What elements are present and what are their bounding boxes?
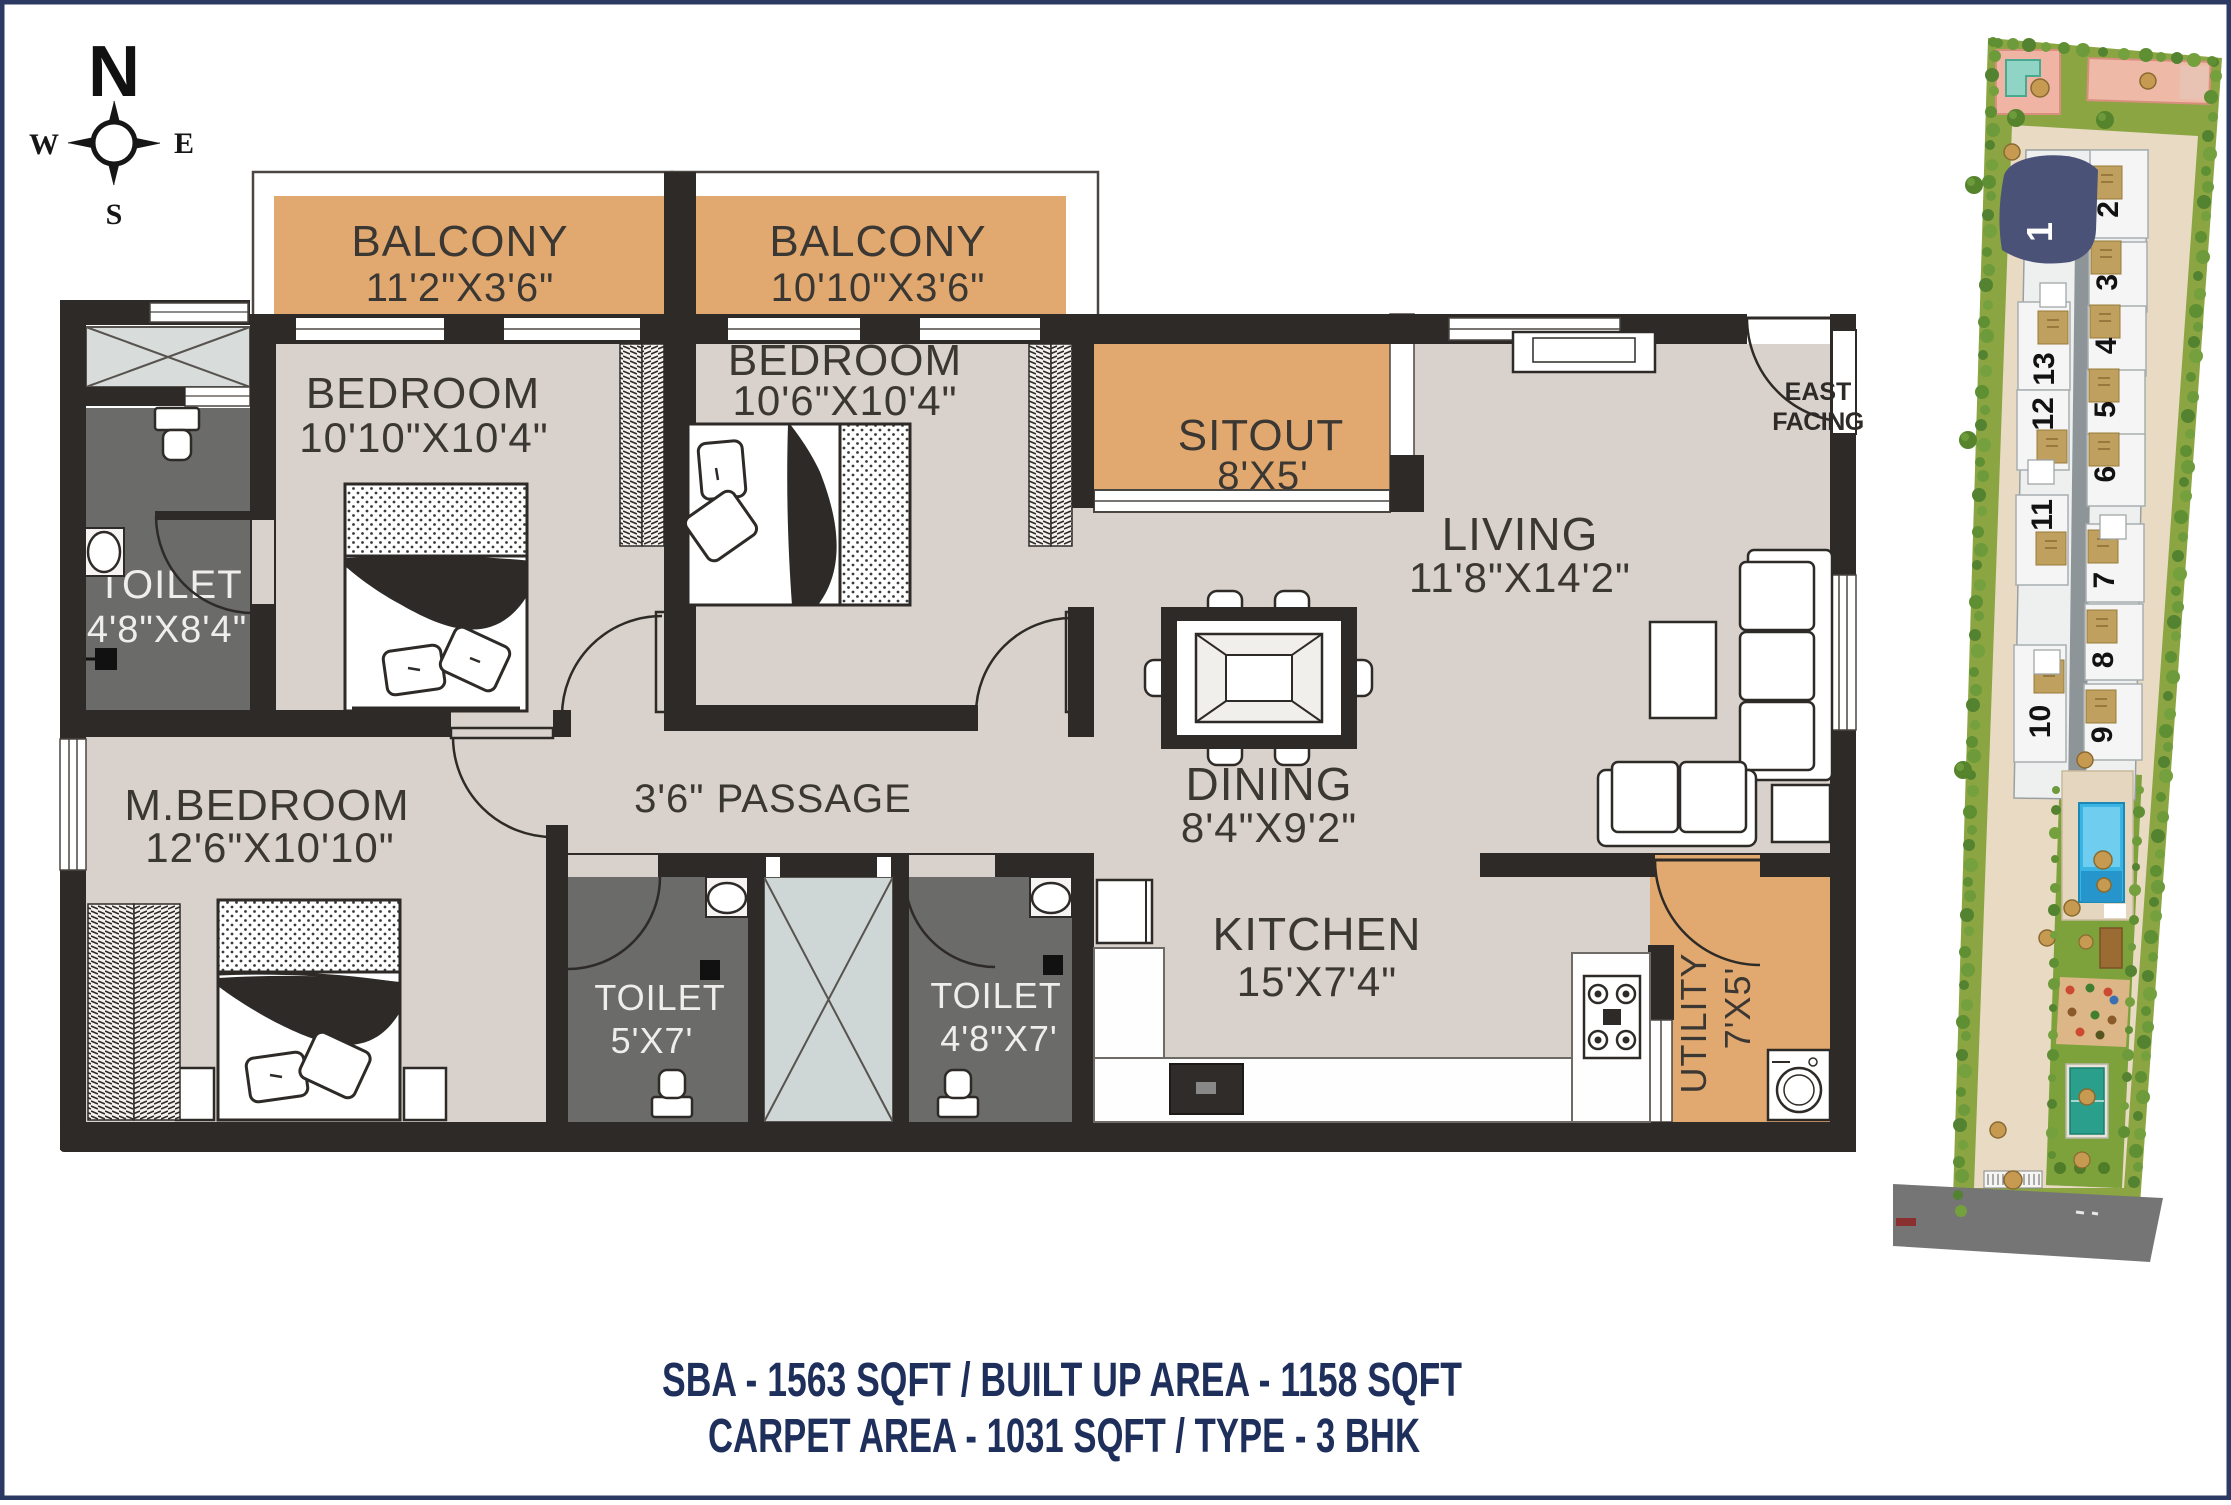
svg-text:BALCONY: BALCONY: [769, 217, 986, 266]
svg-text:10: 10: [2024, 705, 2057, 738]
svg-text:11'8"X14'2": 11'8"X14'2": [1409, 554, 1631, 601]
svg-text:12: 12: [2027, 397, 2060, 430]
svg-text:UTILITY: UTILITY: [1673, 952, 1714, 1093]
svg-text:11: 11: [2026, 499, 2059, 531]
svg-text:8'4"X9'2": 8'4"X9'2": [1181, 804, 1357, 851]
svg-text:4: 4: [2090, 337, 2123, 354]
svg-text:TOILET: TOILET: [594, 977, 725, 1018]
svg-text:4'8"X7': 4'8"X7': [940, 1018, 1058, 1059]
svg-text:BALCONY: BALCONY: [351, 217, 568, 266]
svg-text:9: 9: [2086, 726, 2119, 743]
svg-text:6: 6: [2089, 466, 2122, 483]
svg-text:S: S: [106, 198, 123, 231]
svg-text:12'6"X10'10": 12'6"X10'10": [145, 824, 394, 871]
svg-text:EAST: EAST: [1785, 378, 1852, 406]
svg-text:5'X7': 5'X7': [611, 1020, 694, 1061]
svg-text:2: 2: [2092, 201, 2125, 218]
svg-text:SBA - 1563 SQFT / BUILT UP ARE: SBA - 1563 SQFT / BUILT UP AREA - 1158 S…: [662, 1354, 1462, 1407]
svg-text:LIVING: LIVING: [1442, 508, 1599, 560]
svg-text:N: N: [88, 32, 140, 112]
svg-text:KITCHEN: KITCHEN: [1213, 908, 1422, 960]
svg-text:W: W: [29, 128, 59, 161]
svg-text:8: 8: [2087, 652, 2120, 669]
svg-text:10'10"X10'4": 10'10"X10'4": [299, 414, 548, 461]
svg-text:5: 5: [2089, 401, 2122, 418]
svg-text:1: 1: [2019, 222, 2060, 242]
svg-text:8'X5': 8'X5': [1217, 454, 1308, 498]
svg-text:3: 3: [2091, 274, 2124, 291]
svg-text:3'6" PASSAGE: 3'6" PASSAGE: [634, 777, 912, 821]
svg-text:7: 7: [2088, 572, 2121, 589]
svg-text:13: 13: [2028, 352, 2061, 385]
svg-text:7'X5': 7'X5': [1717, 967, 1758, 1050]
svg-text:CARPET AREA - 1031 SQFT / TYPE: CARPET AREA - 1031 SQFT / TYPE - 3 BHK: [708, 1410, 1420, 1463]
svg-text:SITOUT: SITOUT: [1178, 411, 1345, 460]
svg-text:DINING: DINING: [1186, 758, 1353, 810]
svg-text:FACING: FACING: [1772, 408, 1863, 436]
svg-text:4'8"X8'4": 4'8"X8'4": [87, 609, 247, 651]
svg-text:10'6"X10'4": 10'6"X10'4": [732, 377, 957, 424]
svg-text:M.BEDROOM: M.BEDROOM: [124, 781, 409, 830]
svg-text:15'X7'4": 15'X7'4": [1237, 958, 1397, 1005]
svg-text:10'10"X3'6": 10'10"X3'6": [771, 266, 986, 310]
svg-text:TOILET: TOILET: [930, 975, 1061, 1016]
svg-text:BEDROOM: BEDROOM: [306, 369, 540, 418]
svg-text:11'2"X3'6": 11'2"X3'6": [366, 266, 555, 310]
svg-text:E: E: [174, 127, 194, 160]
